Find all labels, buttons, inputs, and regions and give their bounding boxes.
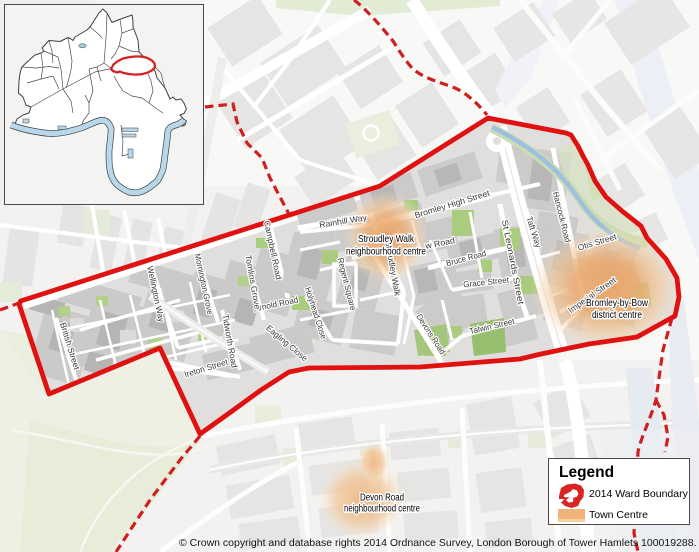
- svg-text:Bromley-by-Bow: Bromley-by-Bow: [586, 298, 649, 309]
- svg-text:Stroudley Walk: Stroudley Walk: [358, 233, 415, 245]
- svg-text:neighbourhood centre: neighbourhood centre: [346, 246, 426, 258]
- svg-text:Devon Road: Devon Road: [360, 493, 404, 504]
- svg-text:neighbourhood centre: neighbourhood centre: [344, 504, 420, 515]
- svg-text:district centre: district centre: [592, 310, 642, 321]
